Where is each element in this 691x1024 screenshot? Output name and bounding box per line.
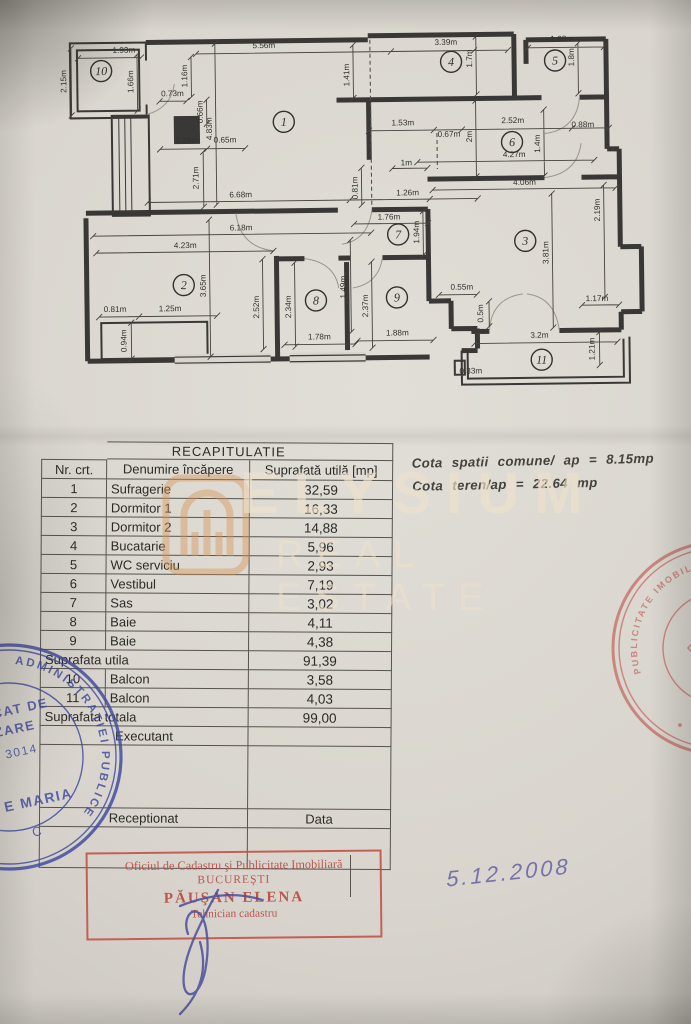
table-cell: 4,03 — [249, 689, 392, 709]
room-number: 9 — [386, 287, 407, 308]
dimension-label: 3.65m — [199, 274, 208, 297]
cota-annotation: Cota spatii comune/ ap = 8.15mp Cota ter… — [412, 446, 681, 498]
dimension-label: 1.41m — [342, 63, 351, 86]
svg-text:4: 4 — [448, 55, 454, 69]
svg-text:5: 5 — [552, 53, 558, 67]
handwritten-date: 5.12.2008 — [446, 853, 570, 892]
room-number: 11 — [531, 349, 552, 370]
room-number: 7 — [388, 224, 409, 245]
dimension-label: 0.88m — [571, 120, 594, 129]
dimension-label: 0.73m — [161, 89, 184, 98]
svg-text:9: 9 — [394, 290, 400, 304]
dimension-label: 0.66m — [196, 100, 205, 123]
svg-text:3: 3 — [521, 234, 528, 248]
table-cell: 3,58 — [249, 670, 392, 690]
svg-text:1: 1 — [281, 115, 287, 129]
dimension-label: 2.19m — [593, 198, 602, 221]
table-cell: 32,59 — [250, 480, 393, 500]
table-cell: 1 — [41, 479, 107, 498]
table-row: 1Sufragerie32,59 — [41, 479, 393, 500]
room-number: 8 — [305, 290, 326, 311]
red-stamp-ring-top: PUBLICITATE IMOBILIARA — [629, 558, 691, 676]
table-cell — [248, 746, 391, 810]
svg-text:10: 10 — [95, 64, 107, 78]
dimension-label: 1m — [401, 158, 413, 167]
scanned-document: 5.56m4.83m1.16m0.73m0.66m1.93m2.15m1.66m… — [0, 0, 691, 1024]
room-number: 10 — [91, 60, 112, 81]
dimension-label: 1.17m — [586, 294, 609, 303]
table-cell: 7,19 — [249, 575, 392, 595]
dimension-label: 0.65m — [214, 135, 237, 144]
table-cell: 3,02 — [249, 594, 392, 614]
table-row: 3Dormitor 214,88 — [41, 517, 393, 538]
dimension-label: 0.5m — [476, 304, 485, 322]
room-number: 1 — [273, 111, 294, 132]
room-number: 4 — [440, 51, 461, 72]
dimension-label: 1.8m — [567, 48, 576, 66]
svg-text:11: 11 — [536, 353, 547, 367]
dimension-label: 1.88m — [386, 328, 409, 337]
table-cell: Sufragerie — [107, 479, 250, 499]
room-number: 2 — [173, 274, 194, 295]
room-number: 5 — [544, 50, 565, 71]
svg-text:8: 8 — [313, 293, 319, 307]
blue-stamp-text-fragment: C — [31, 823, 45, 840]
table-cell: 2 — [41, 498, 107, 517]
table-cell: Sas — [106, 593, 249, 613]
table-title-row: RECAPITULATIE — [41, 441, 393, 461]
blue-round-stamp: ADMINISTRAŢIEI PUBLICE CAT DEZARE3014E M… — [0, 632, 134, 882]
dimension-label: 6.68m — [229, 190, 252, 199]
dimension-label: 0.67m — [438, 130, 461, 139]
table-cell: 16,33 — [250, 499, 393, 519]
dimension-label: 4.06m — [513, 178, 536, 187]
table-row: 4Bucatarie5,96 — [41, 536, 393, 557]
table-cell: 4 — [41, 536, 107, 555]
dimension-label: 2m — [465, 131, 474, 143]
svg-text:2: 2 — [181, 278, 187, 292]
table-cell: 4,38 — [249, 632, 392, 652]
table-row: 5WC serviciu2,93 — [40, 555, 392, 576]
table-cell: Data — [248, 809, 391, 829]
table-cell: Baie — [106, 612, 249, 632]
dimension-label: 1.21m — [587, 337, 596, 360]
dimension-label: 2.34m — [284, 295, 293, 318]
table-cell: 4,11 — [249, 613, 392, 633]
table-cell: 2,93 — [249, 556, 392, 576]
dimension-label: 0.81m — [350, 176, 359, 199]
stair-shaft-lines — [119, 118, 132, 215]
dimension-label: 3.2m — [530, 331, 548, 340]
table-row: 6Vestibul7,19 — [40, 574, 392, 595]
table-row: 8Baie4,11 — [40, 612, 392, 633]
dimension-label: 1.66m — [126, 70, 135, 93]
signature — [150, 882, 300, 1017]
table-cell: 7 — [40, 593, 106, 612]
table-cell: 8 — [40, 612, 106, 631]
dimension-label: 5.56m — [252, 41, 275, 50]
dimension-label: 4.23m — [174, 241, 197, 250]
table-cell: 99,00 — [249, 708, 392, 728]
table-cell: 3 — [41, 517, 107, 536]
dimension-label: 2.37m — [361, 294, 370, 317]
dimension-label: 2.52m — [501, 116, 524, 125]
dimension-label: 1.93m — [112, 46, 135, 55]
table-cell: 5,96 — [250, 537, 393, 557]
table-cell: Bucatarie — [107, 536, 250, 556]
dimension-label: 1.4m — [533, 134, 542, 152]
blue-stamp-text-fragment: CAT DE — [0, 695, 49, 721]
dimension-label: 2.52m — [252, 296, 261, 319]
header-suprafata: Suprafată utilă [mp] — [250, 460, 393, 481]
dimension-label: 1.28m — [176, 136, 199, 145]
header-nr-crt: Nr. crt. — [41, 459, 107, 479]
dimension-label: 6.18m — [230, 223, 253, 232]
cota-line-2: Cota teren/ap = 22.64 mp — [412, 469, 680, 498]
table-cell: Dormitor 1 — [107, 498, 250, 518]
dimension-label: 1.16m — [180, 64, 189, 87]
blue-stamp-fragments: CAT DEZARE3014E MARIAC — [0, 694, 80, 844]
table-row: 2Dormitor 116,33 — [41, 498, 393, 519]
dimension-label: 1.49m — [339, 276, 348, 299]
blue-stamp-text-fragment: 3014 — [4, 741, 39, 761]
dimension-label: 1.76m — [378, 212, 401, 221]
table-cell: 6 — [40, 574, 106, 593]
dimension-label: 1.7m — [465, 49, 474, 67]
dimension-label: 0.55m — [450, 283, 473, 292]
blue-stamp-text-fragment: E MARIA — [3, 785, 74, 815]
dimension-label: 1.94m — [412, 221, 421, 244]
room-number: 3 — [515, 230, 536, 251]
dimension-label: 1.53m — [391, 118, 414, 127]
red-round-stamp: PUBLICITATE IMOBILIARA • ROMANIA • — [599, 528, 691, 768]
dimension-label: 1.25m — [159, 304, 182, 313]
dimension-label: 0.94m — [119, 329, 128, 352]
table-cell: WC serviciu — [106, 555, 249, 575]
table-cell: 14,88 — [250, 518, 393, 538]
dimension-label: 1.26m — [396, 188, 419, 197]
header-denumire: Denumire încăpere — [107, 459, 250, 480]
dimension-label: 0.81m — [104, 305, 127, 314]
dimension-label: 2.71m — [191, 166, 200, 189]
blue-stamp-text-fragment: ZARE — [0, 717, 37, 740]
dimension-label: 1.68m — [550, 34, 573, 43]
table-cell: Dormitor 2 — [107, 517, 250, 537]
table-cell — [248, 727, 391, 747]
dimension-label: 3.81m — [541, 241, 550, 264]
table-cell: 91,39 — [249, 651, 392, 671]
title-spacer-cell — [41, 441, 107, 459]
dimension-label: 1.78m — [308, 332, 331, 341]
svg-text:7: 7 — [395, 227, 402, 241]
dimension-label: 0.33m — [459, 366, 482, 375]
table-title: RECAPITULATIE — [107, 441, 393, 461]
table-header-row: Nr. crt. Denumire încăpere Suprafată uti… — [41, 459, 393, 481]
floor-plan: 5.56m4.83m1.16m0.73m0.66m1.93m2.15m1.66m… — [53, 2, 650, 439]
table-cell: Vestibul — [106, 574, 249, 594]
table-cell: 5 — [40, 555, 106, 574]
table-row: 7Sas3,02 — [40, 593, 392, 614]
svg-text:6: 6 — [509, 135, 515, 149]
dimension-label: 3.39m — [434, 38, 457, 47]
dimension-label: 2.15m — [59, 70, 68, 93]
